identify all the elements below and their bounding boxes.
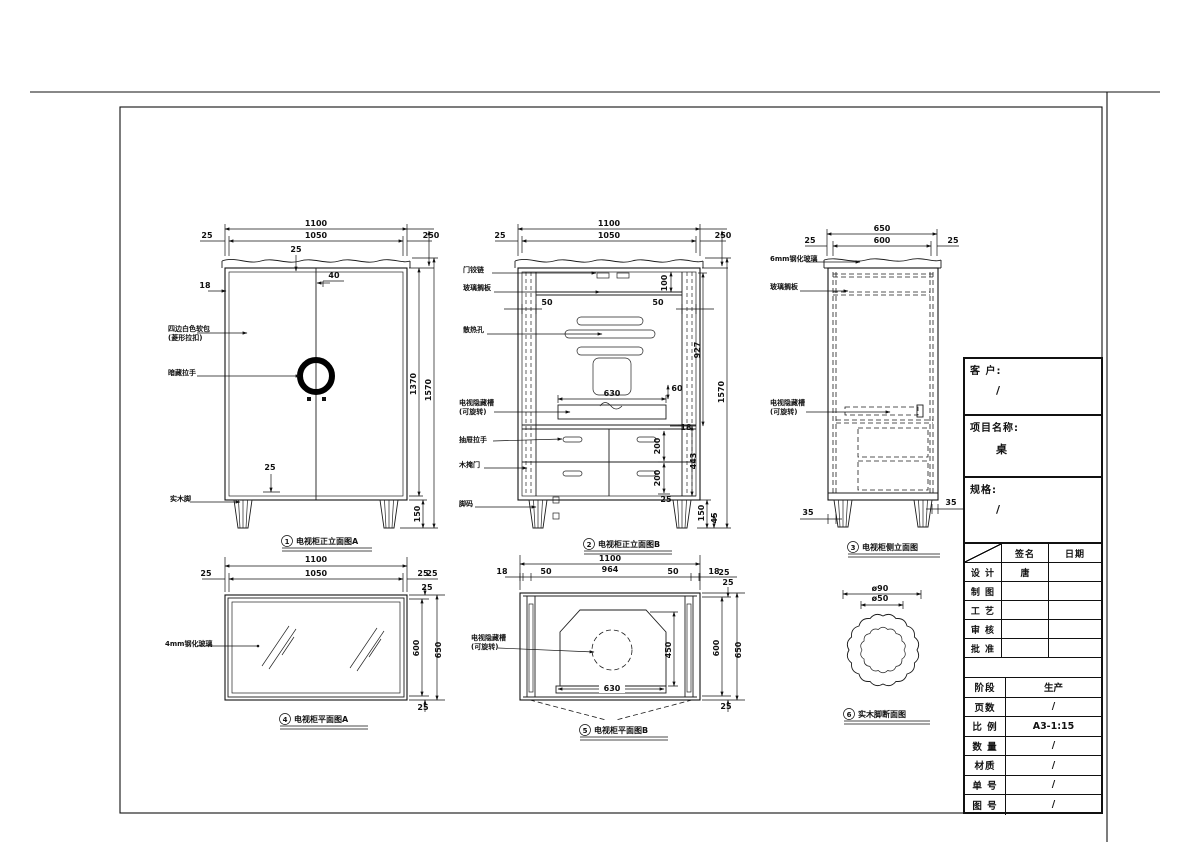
annotation-text: 25 <box>804 236 816 245</box>
view-title: 电视柜平面图B <box>594 725 648 735</box>
title-block: 客 户: / 项目名称: 桌 规格: / 签名 日期 设 计 唐 制 图 工 艺… <box>963 357 1103 814</box>
annotation-text: 散热孔 <box>463 325 484 334</box>
annotation-text: 暗藏拉手 <box>168 368 196 377</box>
cabinet-body <box>828 268 938 500</box>
annotation-text: 1370 <box>409 372 418 395</box>
info-value: / <box>1006 698 1101 718</box>
hidden-lines <box>833 272 933 496</box>
annotation-text: 1100 <box>305 555 328 564</box>
glass-top <box>232 602 400 693</box>
project-label: 项目名称: <box>970 419 1096 434</box>
annotation-text: (可旋转) <box>471 642 498 651</box>
view-number: 4 <box>283 716 288 724</box>
leg-inner-scallop <box>861 627 906 673</box>
row-date <box>1049 601 1101 620</box>
drawer-handles <box>563 437 656 476</box>
annotation-text: 50 <box>540 567 552 576</box>
info-label: 比 例 <box>965 717 1006 737</box>
annotation-text: 630 <box>604 389 621 398</box>
annotation-text: 实木脚 <box>170 494 191 503</box>
annotation-text: 35 <box>802 508 814 517</box>
info-table: 阶段 生产 页数 / 比 例 A3-1:15 数 量 / 材质 / 单 号 / … <box>965 678 1101 815</box>
info-value: / <box>1006 795 1101 815</box>
annotation-text: 60 <box>671 384 683 393</box>
texts-v2: 1100251050250505010063060182002002544392… <box>458 219 732 524</box>
sign-column-header: 签名 <box>1002 544 1049 563</box>
texts-v4: 1100251050252525600650254mm钢化玻璃 <box>165 555 443 712</box>
top-wavy-edge <box>222 259 410 262</box>
row-sign: 唐 <box>1002 563 1049 582</box>
annotation-text: 650 <box>434 641 443 658</box>
row-label: 审 核 <box>965 620 1002 639</box>
legs <box>234 500 398 528</box>
handle-stud <box>322 397 326 401</box>
annotation-text: 650 <box>734 641 743 658</box>
annotation-text: 25 <box>660 495 672 504</box>
glass-top-slab <box>824 260 941 268</box>
leader-lines-v1 <box>190 333 300 502</box>
annotation-text: 964 <box>602 565 619 574</box>
annotation-text: 电视隐藏槽 <box>471 633 506 642</box>
view-title-1: 1 电视柜正立面图A <box>282 536 373 552</box>
annotation-text: 1100 <box>598 219 621 228</box>
annotation-text: 25 <box>947 236 959 245</box>
annotation-text: 50 <box>652 298 664 307</box>
annotation-text: 50 <box>541 298 553 307</box>
view-title-6: 6 实木脚断面图 <box>844 709 931 725</box>
row-label: 工 艺 <box>965 601 1002 620</box>
annotation-text: 443 <box>689 453 698 470</box>
annotation-text: 25 <box>722 578 734 587</box>
annotation-text: 18 <box>199 281 211 290</box>
texts-v5: 110018509645018252560065025450630电视隐藏槽(可… <box>471 554 743 711</box>
projection-lines <box>530 700 692 720</box>
row-date <box>1049 563 1101 582</box>
view-number: 5 <box>583 727 588 735</box>
annotation-text: 25 <box>718 568 730 577</box>
annotation-text: 600 <box>712 639 721 656</box>
diagonal-cell <box>965 544 1002 563</box>
glass-shelf-line <box>536 292 682 295</box>
project-section: 项目名称: 桌 <box>965 416 1101 478</box>
customer-section: 客 户: / <box>965 359 1101 416</box>
dimensions-v5 <box>505 555 745 712</box>
info-value: / <box>1006 756 1101 776</box>
annotation-text: 25 <box>421 583 433 592</box>
row-sign <box>1002 601 1049 620</box>
customer-label: 客 户: <box>970 362 1096 377</box>
leader-lines-v5 <box>498 648 594 652</box>
view-number: 2 <box>587 541 592 549</box>
side-elevation: 650256002535356mm钢化玻璃玻璃搁板电视隐藏槽(可旋转) 3 电视… <box>770 224 963 557</box>
info-value: 生产 <box>1006 678 1101 698</box>
row-sign <box>1002 582 1049 601</box>
annotation-text: 650 <box>874 224 891 233</box>
annotation-text: (菱形拉扣) <box>168 333 202 342</box>
row-sign <box>1002 620 1049 639</box>
view-title-3: 3 电视柜侧立面图 <box>848 542 941 558</box>
annotation-text: 25 <box>201 231 213 240</box>
dimensions-v2 <box>495 224 731 528</box>
view-title: 电视柜正立面图A <box>296 536 359 546</box>
row-label: 设 计 <box>965 563 1002 582</box>
annotation-text: ø50 <box>872 594 889 603</box>
annotation-text: 1050 <box>305 231 328 240</box>
info-label: 数 量 <box>965 737 1006 757</box>
view-number: 1 <box>285 538 290 546</box>
annotation-text: 927 <box>693 342 702 359</box>
view-title: 电视柜侧立面图 <box>862 542 918 552</box>
annotation-text: 1100 <box>599 554 622 563</box>
drawing-sheet: 11002510502502540182513701570150四边白色软包(菱… <box>0 0 1191 842</box>
annotation-text: 250 <box>423 231 440 240</box>
annotation-text: 150 <box>413 505 422 522</box>
spec-value: / <box>970 503 1096 516</box>
annotation-text: (可旋转) <box>459 407 486 416</box>
dimensions-v4 <box>202 557 445 712</box>
annotation-text: 电视隐藏槽 <box>770 398 805 407</box>
annotation-text: 1570 <box>717 380 726 403</box>
spec-section: 规格: / <box>965 478 1101 544</box>
info-label: 阶段 <box>965 678 1006 698</box>
handle-stud <box>307 397 311 401</box>
leg-outer-scallop <box>847 614 918 685</box>
annotation-text: 600 <box>412 639 421 656</box>
view-title: 电视柜正立面图B <box>598 539 660 549</box>
info-label: 材质 <box>965 756 1006 776</box>
annotation-text: 1050 <box>305 569 328 578</box>
annotation-text: 25 <box>264 463 276 472</box>
annotation-text: 200 <box>653 437 662 454</box>
annotation-text: 18 <box>496 567 508 576</box>
customer-value: / <box>970 384 1096 397</box>
info-label: 图 号 <box>965 795 1006 815</box>
annotation-text: 18 <box>680 423 692 432</box>
tv-turntable-recess <box>560 610 666 686</box>
row-date <box>1049 639 1101 658</box>
view-title: 实木脚断面图 <box>858 709 906 719</box>
annotation-text: 25 <box>426 569 438 578</box>
row-label: 制 图 <box>965 582 1002 601</box>
annotation-text: 450 <box>664 641 673 658</box>
annotation-text: 4mm钢化玻璃 <box>165 639 212 648</box>
drawer-unit-lines <box>522 425 696 496</box>
spec-label: 规格: <box>970 481 1096 496</box>
annotation-text: 1050 <box>598 231 621 240</box>
annotation-text: 250 <box>715 231 732 240</box>
annotation-text: 木掩门 <box>458 460 480 469</box>
leader-lines-v3 <box>800 262 890 412</box>
annotation-text: 25 <box>417 703 429 712</box>
row-sign <box>1002 639 1049 658</box>
legs <box>834 500 932 527</box>
annotation-text: 100 <box>660 274 669 291</box>
signature-table: 签名 日期 设 计 唐 制 图 工 艺 审 核 批 准 <box>965 544 1101 678</box>
view-title-5: 5 电视柜平面图B <box>580 725 669 741</box>
annotation-text: 玻璃搁板 <box>463 283 492 292</box>
annotation-text: 玻璃搁板 <box>770 282 799 291</box>
annotation-text: 45 <box>710 512 719 524</box>
annotation-text: 25 <box>200 569 212 578</box>
hinge-plate <box>597 273 609 278</box>
project-value: 桌 <box>970 441 1096 457</box>
info-value: / <box>1006 737 1101 757</box>
top-outline <box>225 595 407 700</box>
annotation-text: 150 <box>697 504 706 521</box>
row-date <box>1049 620 1101 639</box>
empty-row <box>965 658 1101 678</box>
annotation-text: 电视隐藏槽 <box>459 398 494 407</box>
view-title-4: 4 电视柜平面图A <box>280 714 369 730</box>
plan-view-a: 1100251050252525600650254mm钢化玻璃 4 电视柜平面图… <box>165 555 445 729</box>
view-title: 电视柜平面图A <box>294 714 349 724</box>
annotation-text: 25 <box>290 245 302 254</box>
info-value: / <box>1006 776 1101 796</box>
texts-v6: ø90ø50 <box>872 584 889 603</box>
annotation-text: 200 <box>653 469 662 486</box>
front-elevation-a: 11002510502502540182513701570150四边白色软包(菱… <box>168 219 440 551</box>
annotation-text: 35 <box>945 498 957 507</box>
break-wave <box>600 403 622 410</box>
plan-view-b: 110018509645018252560065025450630电视隐藏槽(可… <box>471 554 745 740</box>
info-label: 单 号 <box>965 776 1006 796</box>
annotation-text: 抽屉拉手 <box>459 435 487 444</box>
view-title-2: 2 电视柜正立面图B <box>584 539 673 555</box>
leader-lines-v2 <box>475 273 602 507</box>
annotation-text: ø90 <box>872 584 889 593</box>
hinge-plate <box>617 273 629 278</box>
annotation-text: 四边白色软包 <box>168 324 210 333</box>
annotation-text: 50 <box>667 567 679 576</box>
view-number: 3 <box>851 544 856 552</box>
annotation-text: 1570 <box>424 378 433 401</box>
annotation-text: 40 <box>328 271 340 280</box>
annotation-text: 630 <box>604 684 621 693</box>
turntable-circle <box>592 630 632 670</box>
annotation-text: 600 <box>874 236 891 245</box>
date-column-header: 日期 <box>1049 544 1101 563</box>
annotation-text: 25 <box>494 231 506 240</box>
front-elevation-b: 1100251050250505010063060182002002544392… <box>458 219 732 554</box>
annotation-text: 25 <box>720 702 732 711</box>
vent-slots <box>565 317 655 355</box>
annotation-text: 1100 <box>305 219 328 228</box>
glass-reflection-marks <box>262 626 384 671</box>
row-date <box>1049 582 1101 601</box>
view-number: 6 <box>847 711 852 719</box>
annotation-text: 6mm钢化玻璃 <box>770 254 817 263</box>
annotation-text: (可旋转) <box>770 407 797 416</box>
info-value: A3-1:15 <box>1006 717 1101 737</box>
info-label: 页数 <box>965 698 1006 718</box>
annotation-text: 门铰链 <box>463 265 484 274</box>
leg-section: ø90ø50 6 实木脚断面图 <box>843 584 930 724</box>
row-label: 批 准 <box>965 639 1002 658</box>
annotation-text: 脚码 <box>458 499 473 508</box>
